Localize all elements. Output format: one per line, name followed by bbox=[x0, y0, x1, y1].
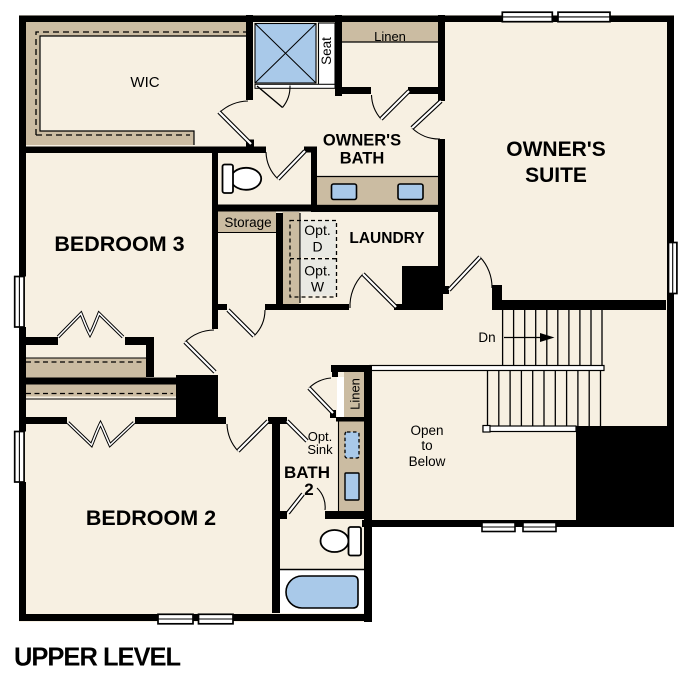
svg-text:Seat: Seat bbox=[319, 37, 334, 65]
svg-text:BEDROOM 2: BEDROOM 2 bbox=[86, 506, 216, 530]
svg-text:BATH: BATH bbox=[340, 150, 385, 168]
svg-text:Below: Below bbox=[409, 454, 446, 469]
svg-text:to: to bbox=[421, 438, 432, 453]
svg-text:UPPER LEVEL: UPPER LEVEL bbox=[14, 644, 181, 672]
svg-text:LAUNDRY: LAUNDRY bbox=[349, 230, 425, 247]
svg-text:SUITE: SUITE bbox=[525, 164, 587, 187]
svg-text:Opt.: Opt. bbox=[304, 222, 330, 238]
svg-text:WIC: WIC bbox=[130, 74, 159, 91]
svg-text:OWNER'S: OWNER'S bbox=[323, 132, 401, 150]
svg-text:Dn: Dn bbox=[478, 330, 495, 345]
svg-text:Sink: Sink bbox=[307, 442, 333, 457]
svg-text:W: W bbox=[311, 279, 325, 295]
svg-text:Linen: Linen bbox=[374, 29, 406, 44]
svg-text:OWNER'S: OWNER'S bbox=[506, 138, 606, 161]
svg-text:Storage: Storage bbox=[224, 215, 271, 230]
svg-text:D: D bbox=[312, 239, 322, 255]
svg-text:2: 2 bbox=[304, 480, 313, 499]
svg-text:Open: Open bbox=[410, 423, 443, 438]
svg-text:Opt.: Opt. bbox=[304, 263, 330, 279]
svg-text:BEDROOM 3: BEDROOM 3 bbox=[54, 232, 184, 256]
svg-text:Linen: Linen bbox=[348, 378, 363, 410]
